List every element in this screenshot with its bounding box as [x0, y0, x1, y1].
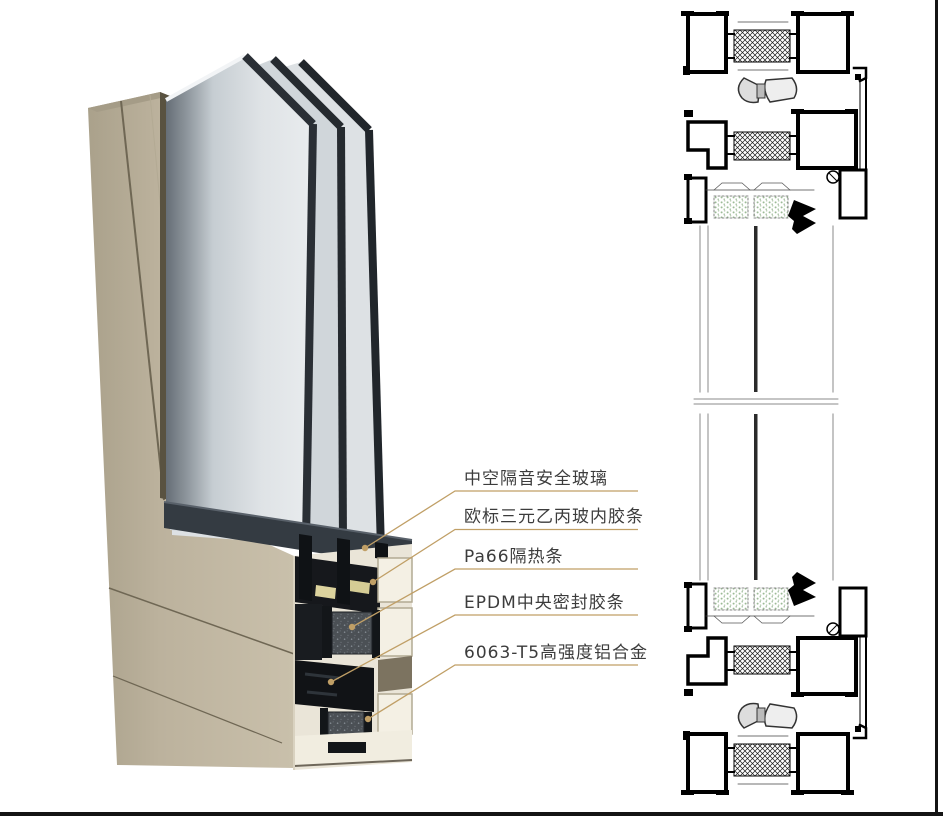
product-diagram-page: 中空隔音安全玻璃 欧标三元乙丙玻内胶条 Pa66隔热条 EPDM中央密封胶条 6…	[0, 0, 943, 823]
part-label-epdm-glass-gasket: 欧标三元乙丙玻内胶条	[464, 508, 644, 527]
thermal-break-strip	[332, 612, 372, 654]
page-right-border	[935, 0, 938, 815]
cad-section-drawing	[681, 11, 866, 795]
central-seal-zone	[294, 660, 374, 712]
window-3d-render	[88, 56, 412, 770]
part-label-epdm-central-seal: EPDM中央密封胶条	[464, 594, 625, 613]
figure-canvas	[0, 0, 943, 823]
part-label-pa66-thermal-break: Pa66隔热条	[464, 548, 564, 567]
profile-cross-section	[294, 534, 412, 770]
glass-pane-1	[166, 56, 313, 542]
part-label-6063-t5-aluminum: 6063-T5高强度铝合金	[464, 644, 648, 663]
page-bottom-border	[0, 812, 943, 816]
part-label-insulated-glass: 中空隔音安全玻璃	[464, 470, 608, 489]
